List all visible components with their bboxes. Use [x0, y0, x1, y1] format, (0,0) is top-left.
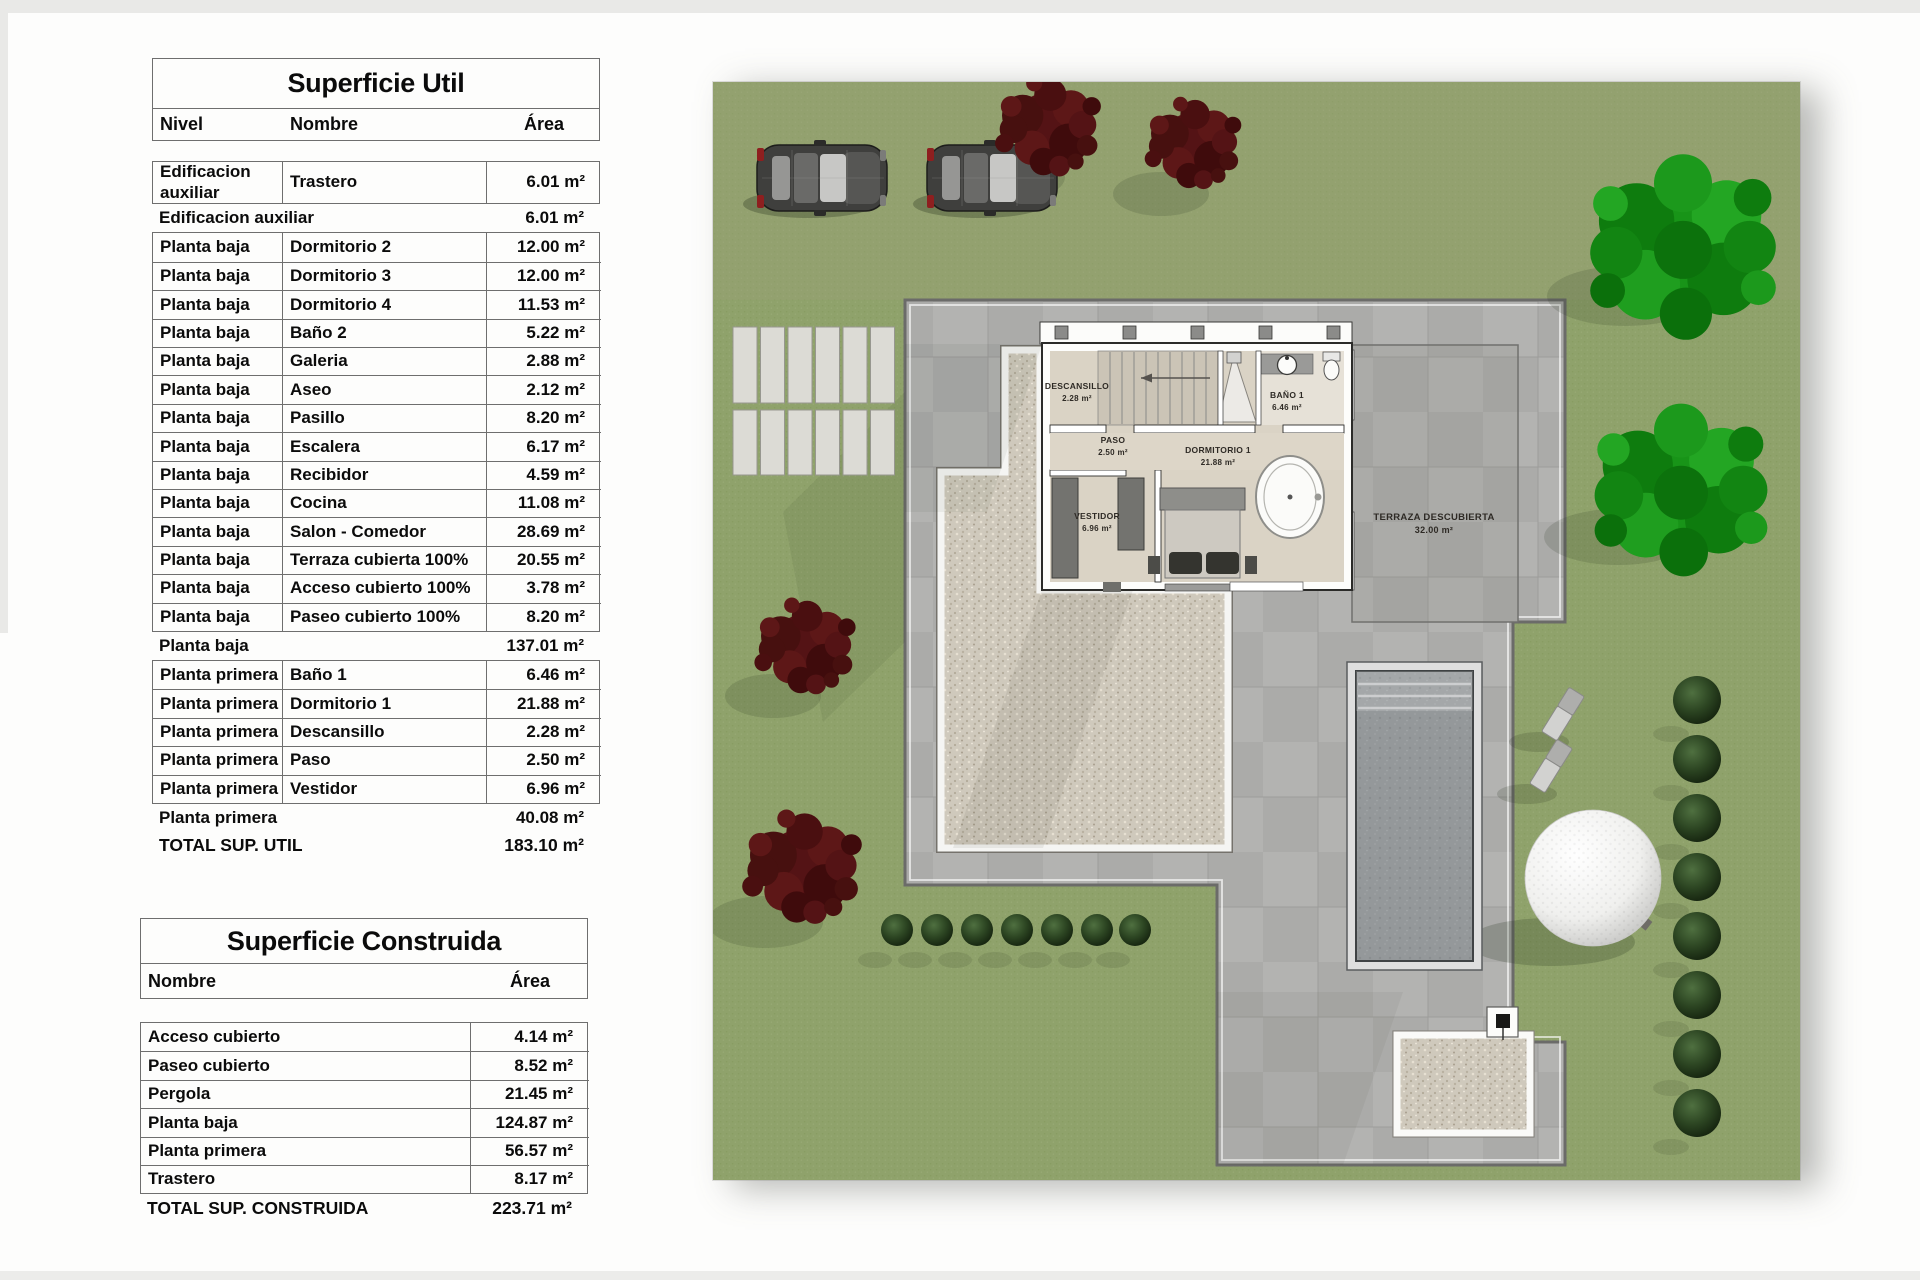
- table-cell: Vestidor: [283, 775, 487, 803]
- subtotal-label: Edificacion auxiliar: [159, 208, 314, 228]
- table-cell: 124.87 m²: [471, 1108, 589, 1136]
- table-cell: 8.20 m²: [487, 603, 601, 631]
- table-cell: Planta baja: [153, 432, 283, 460]
- table-cell: 56.57 m²: [471, 1137, 589, 1165]
- table-cell: 8.52 m²: [471, 1051, 589, 1079]
- walkway-strip: [1230, 582, 1303, 591]
- room-label: DESCANSILLO: [1045, 381, 1109, 391]
- table-cell: Planta baja: [153, 347, 283, 375]
- table-cell: Planta baja: [153, 517, 283, 545]
- col-header-area: Área: [471, 964, 589, 998]
- table-gap: [152, 141, 600, 161]
- superficie-util-body: Edificacion auxiliarTrastero6.01 m²Edifi…: [152, 161, 600, 860]
- table-group: Planta primeraBaño 16.46 m²Planta primer…: [152, 660, 600, 804]
- table-group: Edificacion auxiliarTrastero6.01 m²: [152, 161, 600, 204]
- subtotal-label: TOTAL SUP. UTIL: [159, 835, 303, 856]
- room-area: 6.96 m²: [1082, 524, 1112, 533]
- page-bottom-border: [0, 1271, 1920, 1280]
- house-floor-plan: [1040, 322, 1352, 592]
- table-cell: Planta baja: [153, 262, 283, 290]
- terraza-descubierta: [1346, 345, 1518, 622]
- table-cell: Planta primera: [153, 689, 283, 717]
- doormat: [1103, 582, 1121, 592]
- table-cell: 20.55 m²: [487, 546, 601, 574]
- staircase: [1098, 351, 1218, 425]
- table-cell: Dormitorio 4: [283, 290, 487, 318]
- superficie-util-table: Superficie Util Nivel Nombre Área Edific…: [152, 58, 600, 860]
- superficie-construida-table: Superficie Construida Nombre Área Acceso…: [140, 918, 588, 1222]
- table-cell: Planta baja: [141, 1108, 471, 1136]
- table-cell: 12.00 m²: [487, 262, 601, 290]
- col-header-nivel: Nivel: [153, 109, 283, 140]
- table-cell: Aseo: [283, 375, 487, 403]
- nightstand: [1245, 556, 1257, 574]
- table-cell: 8.20 m²: [487, 404, 601, 432]
- col-header-nombre: Nombre: [141, 964, 471, 998]
- table-cell: Baño 1: [283, 661, 487, 689]
- bathroom: [1256, 351, 1344, 425]
- table-cell: Planta baja: [153, 319, 283, 347]
- table-cell: Pasillo: [283, 404, 487, 432]
- table-cell: Planta primera: [153, 746, 283, 774]
- table-cell: Planta baja: [153, 233, 283, 261]
- room-area: 2.28 m²: [1062, 394, 1092, 403]
- table-cell: Paseo cubierto 100%: [283, 603, 487, 631]
- subtotal-value: 137.01 m²: [486, 636, 600, 656]
- table-cell: Planta baja: [153, 574, 283, 602]
- subtotal-value: 6.01 m²: [486, 208, 600, 228]
- table-group: Planta bajaDormitorio 212.00 m²Planta ba…: [152, 232, 600, 631]
- table-cell: Dormitorio 1: [283, 689, 487, 717]
- table-cell: Planta baja: [153, 290, 283, 318]
- table-cell: 2.28 m²: [487, 718, 601, 746]
- table-cell: Escalera: [283, 432, 487, 460]
- table-cell: Planta baja: [153, 489, 283, 517]
- table-cell: Edificacion auxiliar: [153, 162, 283, 203]
- table-cell: Terraza cubierta 100%: [283, 546, 487, 574]
- table-cell: 2.50 m²: [487, 746, 601, 774]
- table-cell: Baño 2: [283, 319, 487, 347]
- subtotal-label: Planta primera: [159, 808, 277, 828]
- table-cell: Planta baja: [153, 375, 283, 403]
- room-area: 6.46 m²: [1272, 403, 1302, 412]
- table-cell: 11.53 m²: [487, 290, 601, 318]
- subtotal-label: Planta baja: [159, 636, 249, 656]
- site-plan: DESCANSILLO 2.28 m² BAÑO 1 6.46 m² PASO …: [713, 82, 1800, 1180]
- subtotal-value: 183.10 m²: [486, 835, 600, 856]
- superficie-construida-title: Superficie Construida: [140, 918, 588, 964]
- room-area: 2.50 m²: [1098, 448, 1128, 457]
- table-gap: [140, 999, 588, 1022]
- room-area: 21.88 m²: [1201, 458, 1235, 467]
- table-cell: Planta primera: [153, 718, 283, 746]
- page: { "superficie_util": { "title": "Superfi…: [0, 0, 1920, 1280]
- table-cell: Planta baja: [153, 603, 283, 631]
- col-header-nombre: Nombre: [283, 109, 487, 140]
- table-cell: 2.88 m²: [487, 347, 601, 375]
- swimming-pool: [1347, 662, 1482, 970]
- table-cell: 6.96 m²: [487, 775, 601, 803]
- table-cell: Paso: [283, 746, 487, 774]
- toilet: [1324, 360, 1339, 380]
- table-cell: Planta baja: [153, 404, 283, 432]
- room-area: 32.00 m²: [1415, 525, 1453, 535]
- table-cell: Planta primera: [141, 1137, 471, 1165]
- gravel-pad: [1393, 1031, 1534, 1137]
- subtotal-label: TOTAL SUP. CONSTRUIDA: [147, 1198, 368, 1219]
- table-cell: 21.45 m²: [471, 1080, 589, 1108]
- table-cell: Planta baja: [153, 546, 283, 574]
- sphere-ornament: [1525, 810, 1661, 946]
- table-subtotal-row: Planta primera40.08 m²: [152, 804, 600, 832]
- table-cell: Planta primera: [153, 661, 283, 689]
- page-top-border: [0, 0, 1920, 13]
- table-cell: 6.17 m²: [487, 432, 601, 460]
- superficie-util-header: Nivel Nombre Área: [152, 109, 600, 141]
- table-cell: Pergola: [141, 1080, 471, 1108]
- table-cell: Trastero: [283, 162, 487, 203]
- table-cell: 6.01 m²: [487, 162, 601, 203]
- table-cell: 12.00 m²: [487, 233, 601, 261]
- table-total-row: TOTAL SUP. CONSTRUIDA223.71 m²: [140, 1194, 588, 1222]
- room-label: BAÑO 1: [1270, 390, 1304, 400]
- room-label: PASO: [1101, 435, 1126, 445]
- table-total-row: TOTAL SUP. UTIL183.10 m²: [152, 832, 600, 860]
- table-cell: 8.17 m²: [471, 1165, 589, 1193]
- table-cell: Cocina: [283, 489, 487, 517]
- table-subtotal-row: Planta baja137.01 m²: [152, 632, 600, 660]
- table-cell: Dormitorio 2: [283, 233, 487, 261]
- table-cell: 2.12 m²: [487, 375, 601, 403]
- table-subtotal-row: Edificacion auxiliar6.01 m²: [152, 204, 600, 232]
- table-cell: Salon - Comedor: [283, 517, 487, 545]
- table-cell: Trastero: [141, 1165, 471, 1193]
- table-group: Acceso cubierto4.14 m²Paseo cubierto8.52…: [140, 1022, 588, 1194]
- table-cell: Dormitorio 3: [283, 262, 487, 290]
- table-cell: 21.88 m²: [487, 689, 601, 717]
- table-cell: 28.69 m²: [487, 517, 601, 545]
- superficie-construida-header: Nombre Área: [140, 964, 588, 999]
- table-cell: Recibidor: [283, 461, 487, 489]
- superficie-construida-body: Acceso cubierto4.14 m²Paseo cubierto8.52…: [140, 1022, 588, 1222]
- table-cell: Acceso cubierto: [141, 1023, 471, 1051]
- sliding-door: [1165, 584, 1230, 591]
- table-cell: 3.78 m²: [487, 574, 601, 602]
- table-cell: Galeria: [283, 347, 487, 375]
- table-cell: 4.14 m²: [471, 1023, 589, 1051]
- table-cell: Paseo cubierto: [141, 1051, 471, 1079]
- utility-box: [1487, 1007, 1518, 1040]
- page-left-border: [0, 13, 8, 633]
- superficie-util-title: Superficie Util: [152, 58, 600, 109]
- table-cell: 6.46 m²: [487, 661, 601, 689]
- table-cell: 5.22 m²: [487, 319, 601, 347]
- car: [757, 140, 887, 216]
- table-cell: Planta baja: [153, 461, 283, 489]
- subtotal-value: 40.08 m²: [486, 808, 600, 828]
- table-cell: 11.08 m²: [487, 489, 601, 517]
- table-cell: Descansillo: [283, 718, 487, 746]
- subtotal-value: 223.71 m²: [474, 1198, 588, 1219]
- table-cell: 4.59 m²: [487, 461, 601, 489]
- room-label: DORMITORIO 1: [1185, 445, 1251, 455]
- bathtub-round: [1256, 456, 1324, 538]
- room-label: TERRAZA DESCUBIERTA: [1373, 512, 1494, 523]
- nightstand: [1148, 556, 1160, 574]
- room-label: VESTIDOR: [1074, 511, 1120, 521]
- table-cell: Planta primera: [153, 775, 283, 803]
- col-header-area: Área: [487, 109, 601, 140]
- table-cell: Acceso cubierto 100%: [283, 574, 487, 602]
